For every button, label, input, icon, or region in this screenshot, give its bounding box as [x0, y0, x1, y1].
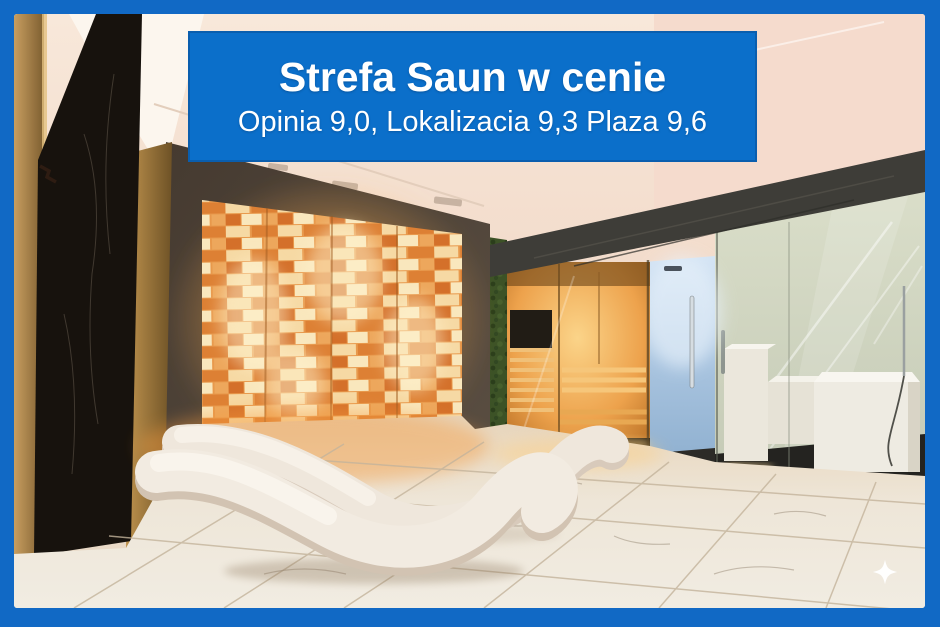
photo-frame: Strefa Saun w cenie Opinia 9,0, Lokaliza… [0, 0, 940, 627]
steam-door-handle [721, 330, 725, 374]
shower-door-handle [690, 296, 694, 388]
banner-title: Strefa Saun w cenie [279, 57, 666, 98]
promo-banner: Strefa Saun w cenie Opinia 9,0, Lokaliza… [188, 31, 757, 162]
steam-room [715, 184, 925, 500]
banner-subtitle: Opinia 9,0, Lokalizacia 9,3 Plaza 9,6 [238, 108, 707, 137]
sparkle-icon [872, 559, 898, 585]
